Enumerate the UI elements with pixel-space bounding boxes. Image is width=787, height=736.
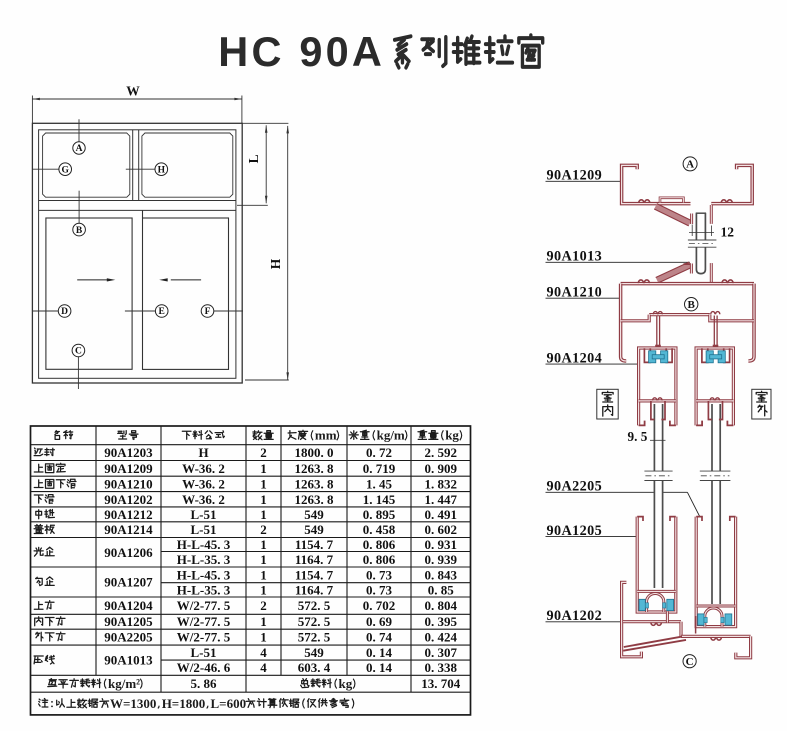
svg-text:1. 45: 1. 45 bbox=[366, 476, 393, 491]
svg-text:2. 592: 2. 592 bbox=[424, 445, 457, 460]
svg-text:0. 72: 0. 72 bbox=[366, 445, 392, 460]
svg-text:G: G bbox=[62, 165, 70, 175]
svg-text:0. 73: 0. 73 bbox=[366, 582, 393, 597]
svg-text:kg: kg bbox=[445, 428, 459, 443]
svg-text:1: 1 bbox=[260, 552, 267, 567]
svg-text:L: L bbox=[246, 154, 261, 163]
svg-text:90A1209: 90A1209 bbox=[104, 461, 153, 476]
svg-text:0. 458: 0. 458 bbox=[363, 522, 396, 537]
svg-text:0. 895: 0. 895 bbox=[363, 507, 396, 522]
svg-text:1164. 7: 1164. 7 bbox=[295, 582, 334, 597]
svg-text:L-51: L-51 bbox=[191, 645, 217, 660]
svg-text:90A1205: 90A1205 bbox=[104, 614, 153, 629]
svg-text:1: 1 bbox=[260, 492, 267, 507]
svg-text:1. 145: 1. 145 bbox=[363, 492, 396, 507]
svg-text:5. 86: 5. 86 bbox=[191, 676, 218, 691]
svg-text:549: 549 bbox=[304, 507, 324, 522]
svg-text:W/2-77. 5: W/2-77. 5 bbox=[177, 614, 231, 629]
svg-text:W=1300: W=1300 bbox=[110, 696, 156, 711]
svg-text:0. 804: 0. 804 bbox=[424, 598, 457, 613]
svg-text:kg/m: kg/m bbox=[377, 428, 405, 443]
svg-text:1. 447: 1. 447 bbox=[424, 492, 457, 507]
svg-text:549: 549 bbox=[304, 645, 324, 660]
svg-text:L-51: L-51 bbox=[191, 507, 217, 522]
svg-text:13. 704: 13. 704 bbox=[421, 676, 461, 691]
svg-text:F: F bbox=[205, 307, 211, 317]
svg-text:90A1210: 90A1210 bbox=[104, 476, 152, 491]
svg-text:C: C bbox=[75, 347, 82, 357]
svg-text:kg/m²: kg/m² bbox=[108, 676, 140, 691]
svg-text:0. 931: 0. 931 bbox=[424, 537, 457, 552]
svg-text:1: 1 bbox=[260, 507, 267, 522]
svg-text:90A1214: 90A1214 bbox=[104, 522, 153, 537]
svg-text:2: 2 bbox=[260, 522, 267, 537]
svg-text:0. 806: 0. 806 bbox=[363, 552, 396, 567]
svg-text:1: 1 bbox=[260, 476, 267, 491]
svg-text:0. 702: 0. 702 bbox=[363, 598, 396, 613]
svg-text:572. 5: 572. 5 bbox=[298, 630, 331, 645]
svg-text:0. 73: 0. 73 bbox=[366, 567, 393, 582]
svg-text:H=1800: H=1800 bbox=[162, 696, 206, 711]
svg-text:0. 338: 0. 338 bbox=[424, 660, 457, 675]
svg-text:E: E bbox=[159, 307, 165, 317]
svg-text:0. 14: 0. 14 bbox=[366, 645, 393, 660]
svg-text:1: 1 bbox=[260, 582, 267, 597]
svg-text:W/2-77. 5: W/2-77. 5 bbox=[177, 630, 231, 645]
svg-text:L=600: L=600 bbox=[211, 696, 247, 711]
svg-text:0. 843: 0. 843 bbox=[424, 567, 457, 582]
svg-text:C: C bbox=[686, 656, 694, 668]
svg-text:0. 491: 0. 491 bbox=[424, 507, 457, 522]
svg-text:W-36. 2: W-36. 2 bbox=[182, 476, 225, 491]
svg-text:H: H bbox=[198, 445, 208, 460]
svg-text:0. 74: 0. 74 bbox=[366, 630, 393, 645]
svg-text:H-L-45. 3: H-L-45. 3 bbox=[177, 567, 231, 582]
svg-text:90A1013: 90A1013 bbox=[104, 653, 153, 668]
svg-text:HC 90A: HC 90A bbox=[218, 28, 385, 75]
svg-text:90A1206: 90A1206 bbox=[104, 545, 153, 560]
svg-text:H-L-45. 3: H-L-45. 3 bbox=[177, 537, 231, 552]
svg-text:A: A bbox=[76, 144, 83, 154]
svg-text:B: B bbox=[76, 226, 83, 236]
svg-text:603. 4: 603. 4 bbox=[298, 660, 331, 675]
svg-text:H-L-35. 3: H-L-35. 3 bbox=[177, 582, 231, 597]
svg-text:H: H bbox=[158, 165, 166, 175]
svg-text:H: H bbox=[268, 258, 283, 269]
svg-text:H-L-35. 3: H-L-35. 3 bbox=[177, 552, 231, 567]
svg-text:1154. 7: 1154. 7 bbox=[295, 537, 334, 552]
svg-text:0. 14: 0. 14 bbox=[366, 660, 393, 675]
svg-text:1: 1 bbox=[260, 614, 267, 629]
svg-text:kg: kg bbox=[339, 676, 353, 691]
svg-text:0. 909: 0. 909 bbox=[424, 461, 457, 476]
svg-text:1800. 0: 1800. 0 bbox=[295, 445, 334, 460]
svg-text:W: W bbox=[126, 83, 140, 98]
svg-text:572. 5: 572. 5 bbox=[298, 598, 331, 613]
svg-text:mm: mm bbox=[315, 428, 337, 443]
svg-text:A: A bbox=[686, 159, 694, 171]
svg-text:4: 4 bbox=[260, 645, 267, 660]
svg-text:12: 12 bbox=[721, 224, 735, 239]
svg-text:90A2205: 90A2205 bbox=[104, 630, 153, 645]
svg-text:1154. 7: 1154. 7 bbox=[295, 567, 334, 582]
svg-text:90A1207: 90A1207 bbox=[104, 575, 153, 590]
svg-text:0. 307: 0. 307 bbox=[424, 645, 457, 660]
svg-text:B: B bbox=[688, 299, 696, 311]
svg-text:90A1203: 90A1203 bbox=[104, 445, 153, 460]
svg-text:4: 4 bbox=[260, 660, 267, 675]
svg-text:1: 1 bbox=[260, 567, 267, 582]
svg-text:1263. 8: 1263. 8 bbox=[295, 476, 335, 491]
svg-text:0. 806: 0. 806 bbox=[363, 537, 396, 552]
svg-text:1. 832: 1. 832 bbox=[424, 476, 457, 491]
svg-text:0. 602: 0. 602 bbox=[424, 522, 457, 537]
svg-text:W-36. 2: W-36. 2 bbox=[182, 492, 225, 507]
svg-text:0. 719: 0. 719 bbox=[363, 461, 396, 476]
svg-text:9. 5: 9. 5 bbox=[628, 429, 648, 444]
svg-text:1: 1 bbox=[260, 630, 267, 645]
svg-text:0. 85: 0. 85 bbox=[428, 582, 455, 597]
svg-text:0. 424: 0. 424 bbox=[424, 630, 457, 645]
svg-text:W-36. 2: W-36. 2 bbox=[182, 461, 225, 476]
svg-text:W/2-46. 6: W/2-46. 6 bbox=[177, 660, 231, 675]
svg-text:D: D bbox=[61, 307, 68, 317]
svg-text:0. 69: 0. 69 bbox=[366, 614, 393, 629]
svg-text:0. 939: 0. 939 bbox=[424, 552, 457, 567]
svg-text:0. 395: 0. 395 bbox=[424, 614, 457, 629]
svg-text:90A1204: 90A1204 bbox=[104, 598, 153, 613]
svg-text:2: 2 bbox=[260, 445, 267, 460]
svg-text:549: 549 bbox=[304, 522, 324, 537]
svg-text:572. 5: 572. 5 bbox=[298, 614, 331, 629]
svg-text:1: 1 bbox=[260, 537, 267, 552]
svg-text:1263. 8: 1263. 8 bbox=[295, 461, 335, 476]
svg-text:L-51: L-51 bbox=[191, 522, 217, 537]
svg-text:90A1202: 90A1202 bbox=[104, 492, 152, 507]
svg-text:W/2-77. 5: W/2-77. 5 bbox=[177, 598, 231, 613]
svg-text:1164. 7: 1164. 7 bbox=[295, 552, 334, 567]
svg-text:1263. 8: 1263. 8 bbox=[295, 492, 335, 507]
svg-text:2: 2 bbox=[260, 598, 267, 613]
svg-text:90A1212: 90A1212 bbox=[104, 507, 152, 522]
svg-text:1: 1 bbox=[260, 461, 267, 476]
